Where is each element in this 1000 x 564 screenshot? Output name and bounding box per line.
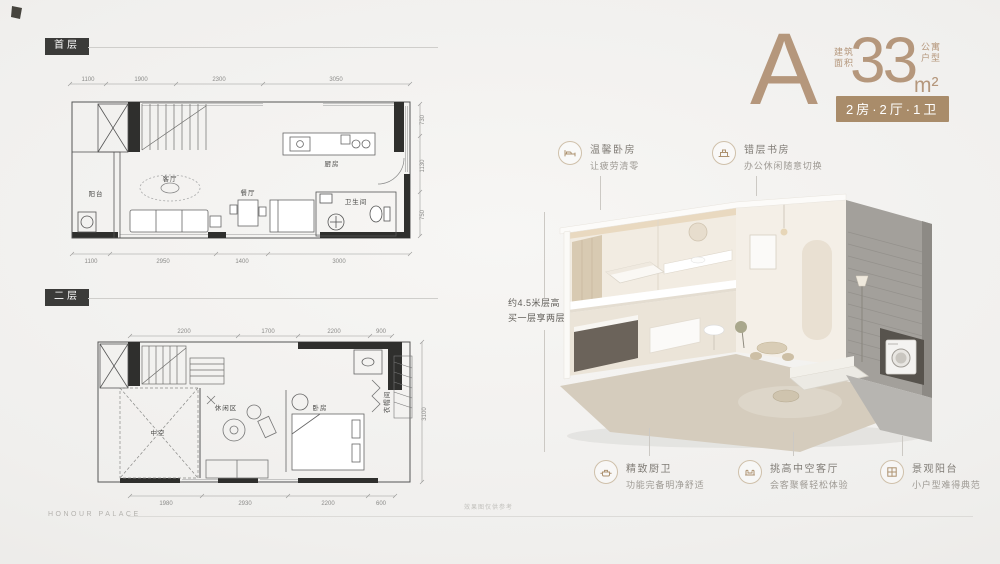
bedroom-furniture xyxy=(286,390,364,472)
svg-text:2200: 2200 xyxy=(321,501,335,507)
second-floor-badge: 二层 xyxy=(45,289,89,306)
balcony-icon xyxy=(880,460,904,484)
unit-area-unit: m² xyxy=(914,74,939,98)
callout-connector xyxy=(600,176,601,210)
unit-spec-badge: 2房·2厅·1卫 xyxy=(836,96,949,122)
room-label-bedroom: 卧房 xyxy=(313,403,328,412)
second-floor-plan: 2200 1700 2200 900 1980 2930 2200 600 31… xyxy=(58,322,440,510)
height-dimension-line-bottom xyxy=(544,330,545,452)
dimension-lines-bottom xyxy=(128,494,397,498)
sofa-icon xyxy=(738,460,762,484)
svg-text:1100: 1100 xyxy=(85,259,99,265)
callout-connector xyxy=(756,176,757,196)
entry-door-arc xyxy=(378,158,404,184)
apartment-3d-render xyxy=(550,180,945,455)
callout-connector xyxy=(902,436,903,456)
bedroom-bench xyxy=(270,200,314,232)
svg-text:1130: 1130 xyxy=(420,159,426,173)
svg-text:2300: 2300 xyxy=(212,77,226,83)
elevator-shaft xyxy=(98,104,128,152)
height-note-line1: 约4.5米层高 xyxy=(508,296,584,311)
svg-text:2950: 2950 xyxy=(156,259,170,265)
svg-text:2200: 2200 xyxy=(327,329,341,335)
unit-area-value: 33 xyxy=(850,28,915,92)
svg-text:900: 900 xyxy=(376,329,387,335)
callout-kitchen-bath: 精致厨卫 功能完备明净舒适 xyxy=(594,460,704,491)
washstand xyxy=(354,350,382,374)
corner-logo xyxy=(10,5,24,21)
room-label-dining: 餐厅 xyxy=(241,188,256,197)
second-floor-leader-line xyxy=(88,298,438,299)
kitchen-counter xyxy=(283,133,375,155)
render-disclaimer: 效果图仅供参考 xyxy=(464,502,513,511)
room-label-living: 客厅 xyxy=(163,174,178,183)
svg-text:750: 750 xyxy=(420,209,426,220)
callout-connector xyxy=(649,428,650,456)
callout-desc: 会客聚餐轻松体验 xyxy=(770,478,848,491)
callout-desc: 让疲劳清零 xyxy=(590,159,639,172)
first-floor-plan: 1100 1900 2300 3050 1100 2950 1400 3000 … xyxy=(58,74,440,266)
bed-icon xyxy=(558,141,582,165)
room-label-kitchen: 厨房 xyxy=(325,159,340,168)
callout-desc: 功能完备明净舒适 xyxy=(626,478,704,491)
folding-door xyxy=(372,380,380,412)
unit-letter: A xyxy=(750,18,818,120)
room-label-closet: 衣帽间 xyxy=(382,391,391,414)
room-label-bathroom: 卫生间 xyxy=(345,197,368,206)
study-icon xyxy=(712,141,736,165)
svg-text:1400: 1400 xyxy=(235,259,249,265)
svg-text:1900: 1900 xyxy=(134,77,148,83)
svg-text:2200: 2200 xyxy=(177,329,191,335)
svg-text:600: 600 xyxy=(376,501,387,507)
callout-title: 精致厨卫 xyxy=(626,460,704,475)
svg-text:3100: 3100 xyxy=(422,407,428,421)
callout-title: 景观阳台 xyxy=(912,460,981,475)
svg-text:1700: 1700 xyxy=(261,329,275,335)
callout-desc: 小户型难得典范 xyxy=(912,478,981,491)
room-label-balcony: 阳台 xyxy=(89,189,104,198)
callout-bedroom: 温馨卧房 让疲劳清零 xyxy=(558,141,639,172)
footer-divider-line xyxy=(128,516,973,517)
height-note-line2: 买一层享两层 xyxy=(508,311,584,326)
svg-text:1100: 1100 xyxy=(82,77,96,83)
svg-text:2930: 2930 xyxy=(238,501,252,507)
kitchen-icon xyxy=(594,460,618,484)
svg-text:1980: 1980 xyxy=(159,501,173,507)
brand-text: HONOUR PALACE xyxy=(48,511,141,518)
unit-type-row2: 户型 xyxy=(921,53,941,64)
height-dimension-line-top xyxy=(544,212,545,298)
room-label-leisure: 休闲区 xyxy=(215,403,238,412)
elevator-shaft xyxy=(100,344,128,388)
first-floor-badge: 首层 xyxy=(45,38,89,55)
callout-connector xyxy=(793,432,794,456)
callout-balcony: 景观阳台 小户型难得典范 xyxy=(880,460,981,491)
svg-text:3000: 3000 xyxy=(332,259,346,265)
brochure-page: 首层 1100 1900 2300 3050 1100 2950 1400 30… xyxy=(0,0,1000,564)
callout-title: 温馨卧房 xyxy=(590,141,639,156)
callout-title: 挑高中空客厅 xyxy=(770,460,848,475)
staircase xyxy=(142,346,224,384)
callout-living: 挑高中空客厅 会客聚餐轻松体验 xyxy=(738,460,848,491)
callout-title: 错层书房 xyxy=(744,141,822,156)
dining-furniture xyxy=(230,200,266,226)
height-note: 约4.5米层高 买一层享两层 xyxy=(508,296,584,327)
svg-text:3050: 3050 xyxy=(329,77,343,83)
dimension-lines-bottom xyxy=(70,252,412,256)
dimension-lines-top xyxy=(68,82,412,86)
callout-desc: 办公休闲随意切换 xyxy=(744,159,822,172)
room-label-void: 中空 xyxy=(151,428,166,437)
unit-type-row1: 公寓 xyxy=(921,42,941,53)
callout-study: 错层书房 办公休闲随意切换 xyxy=(712,141,822,172)
staircase xyxy=(142,104,206,150)
first-floor-leader-line xyxy=(88,47,438,48)
living-room-furniture xyxy=(130,175,221,232)
svg-text:730: 730 xyxy=(420,114,426,125)
